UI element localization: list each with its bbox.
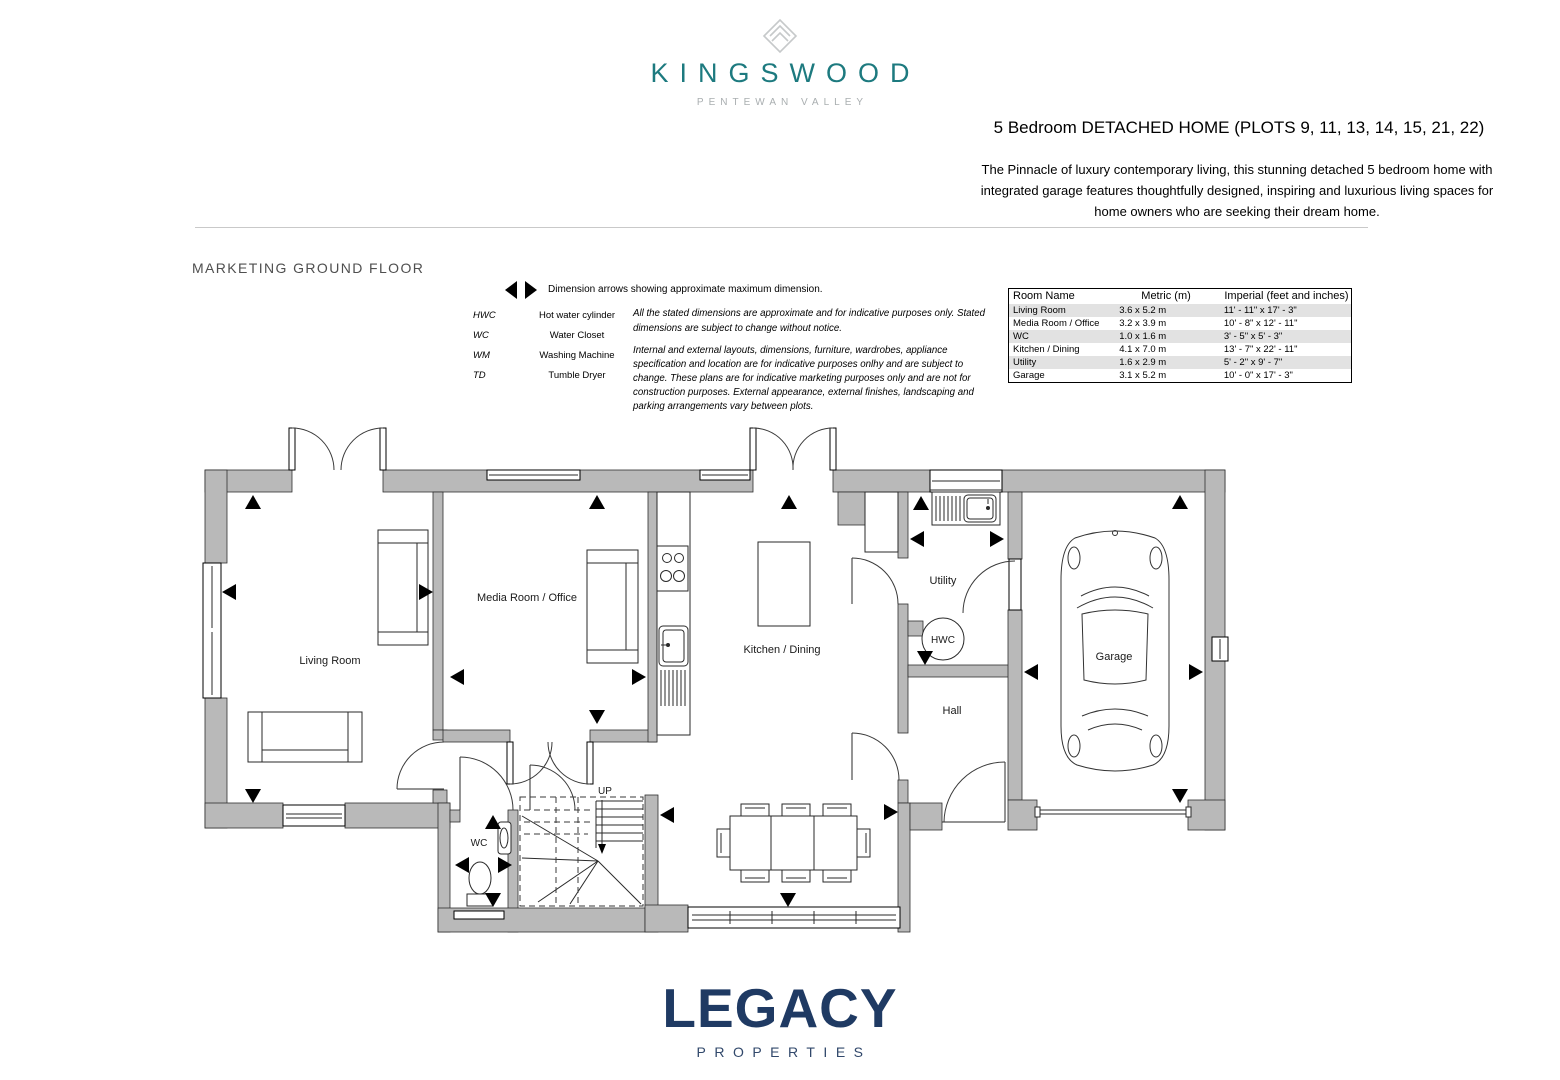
header-brand: KINGSWOOD PENTEWAN VALLEY — [0, 14, 1560, 108]
stairs-up-label: UP — [598, 786, 612, 797]
room-label-wc: WC — [471, 838, 488, 849]
room-label-garage: Garage — [1096, 651, 1133, 663]
window-garage-right — [1212, 637, 1228, 661]
cell-imperial: 13' - 7" x 22' - 11" — [1218, 343, 1352, 356]
door-utility — [852, 558, 898, 604]
brand-name: KINGSWOOD — [0, 58, 1560, 89]
sofa-media — [587, 550, 638, 663]
table-header-row: Room Name Metric (m) Imperial (feet and … — [1009, 289, 1352, 305]
brand-tagline: PENTEWAN VALLEY — [0, 97, 1560, 108]
table-row: Utility 1.6 x 2.9 m 5' - 2" x 9' - 7" — [1009, 356, 1352, 369]
french-doors-living — [289, 428, 386, 470]
cell-metric: 3.2 x 3.9 m — [1110, 317, 1218, 330]
legend-abbr: WM — [473, 350, 515, 361]
kitchen-tall-unit — [865, 492, 898, 552]
door-utility-garage — [963, 559, 1021, 613]
room-label-media: Media Room / Office — [477, 592, 577, 604]
page: KINGSWOOD PENTEWAN VALLEY 5 Bedroom DETA… — [0, 0, 1560, 1080]
table-row: WC 1.0 x 1.6 m 3' - 5" x 5' - 3" — [1009, 330, 1352, 343]
sofa-living-bottom — [248, 712, 362, 762]
room-label-utility: Utility — [930, 575, 957, 587]
window-living-left — [203, 563, 221, 698]
page-title: 5 Bedroom DETACHED HOME (PLOTS 9, 11, 13… — [985, 118, 1493, 138]
stairs: UP — [520, 786, 643, 906]
cell-imperial: 10' - 0" x 17' - 3" — [1218, 369, 1352, 382]
door-hall — [852, 733, 899, 780]
door-living — [397, 742, 444, 789]
footer-brand-tagline: PROPERTIES — [0, 1044, 1560, 1060]
table-row: Garage 3.1 x 5.2 m 10' - 0" x 17' - 3" — [1009, 369, 1352, 382]
cell-metric: 3.6 x 5.2 m — [1110, 304, 1218, 317]
legend-label: Washing Machine — [515, 350, 639, 361]
dimension-arrow-icons — [504, 280, 540, 300]
col-imperial: Imperial (feet and inches) — [1218, 289, 1352, 305]
cell-room: Utility — [1009, 356, 1111, 369]
cell-room: Media Room / Office — [1009, 317, 1111, 330]
legend-items: HWCHot water cylinder WCWater Closet WMW… — [473, 310, 639, 390]
double-doors-media — [507, 742, 593, 784]
cell-imperial: 5' - 2" x 9' - 7" — [1218, 356, 1352, 369]
legend-item: HWCHot water cylinder — [473, 310, 639, 330]
kingswood-chevron-icon — [757, 14, 803, 56]
window-media-top — [487, 470, 580, 480]
hwc-label: HWC — [931, 635, 955, 646]
cell-imperial: 3' - 5" x 5' - 3" — [1218, 330, 1352, 343]
dimension-arrows — [222, 495, 1203, 907]
cell-imperial: 11' - 11" x 17' - 3" — [1218, 304, 1352, 317]
room-label-kitchen: Kitchen / Dining — [743, 644, 820, 656]
floor-plan-svg: HWC — [198, 418, 1238, 938]
col-metric: Metric (m) — [1110, 289, 1218, 305]
disclaimer-dimensions: All the stated dimensions are approximat… — [633, 307, 985, 336]
disclaimer-layouts: Internal and external layouts, dimension… — [633, 344, 987, 414]
table-row: Living Room 3.6 x 5.2 m 11' - 11" x 17' … — [1009, 304, 1352, 317]
room-label-living: Living Room — [299, 655, 360, 667]
col-room-name: Room Name — [1009, 289, 1111, 305]
floor-plan: HWC — [198, 418, 1238, 938]
legend-arrows-note: Dimension arrows showing approximate max… — [548, 284, 823, 295]
garage-door — [1035, 807, 1191, 817]
dining-table — [717, 804, 870, 882]
legend-item: WCWater Closet — [473, 330, 639, 350]
door-wc — [460, 757, 513, 810]
legend-abbr: WC — [473, 330, 515, 341]
legend-label: Tumble Dryer — [515, 370, 639, 381]
room-label-hall: Hall — [943, 705, 962, 717]
window-wc-bottom — [454, 911, 504, 919]
footer-brand-name: LEGACY — [0, 976, 1560, 1040]
door-inner-hall — [530, 765, 575, 810]
utility-sink — [932, 492, 1000, 525]
header-divider — [195, 227, 1368, 228]
table-row: Kitchen / Dining 4.1 x 7.0 m 13' - 7" x … — [1009, 343, 1352, 356]
window-utility-top — [930, 470, 1002, 492]
kitchen-counter — [657, 492, 690, 735]
cell-room: Kitchen / Dining — [1009, 343, 1111, 356]
cell-room: WC — [1009, 330, 1111, 343]
window-kitchen-top — [700, 470, 750, 480]
french-doors-kitchen — [750, 428, 836, 470]
legend-abbr: HWC — [473, 310, 515, 321]
window-dining-bottom — [688, 907, 900, 928]
footer-brand: LEGACY PROPERTIES — [0, 976, 1560, 1060]
page-description: The Pinnacle of luxury contemporary livi… — [972, 160, 1502, 222]
legend-item: TDTumble Dryer — [473, 370, 639, 390]
legend-item: WMWashing Machine — [473, 350, 639, 370]
window-living-bottom — [283, 805, 345, 826]
cell-metric: 1.0 x 1.6 m — [1110, 330, 1218, 343]
legend-label: Water Closet — [515, 330, 639, 341]
section-heading: MARKETING GROUND FLOOR — [192, 260, 424, 276]
dimensions-table: Room Name Metric (m) Imperial (feet and … — [1008, 288, 1352, 383]
stairs-up-arrow-icon — [598, 844, 606, 854]
legend-label: Hot water cylinder — [515, 310, 639, 321]
legend-abbr: TD — [473, 370, 515, 381]
cell-metric: 1.6 x 2.9 m — [1110, 356, 1218, 369]
cell-room: Living Room — [1009, 304, 1111, 317]
cell-metric: 4.1 x 7.0 m — [1110, 343, 1218, 356]
table-row: Media Room / Office 3.2 x 3.9 m 10' - 8"… — [1009, 317, 1352, 330]
kitchen-island — [758, 542, 810, 626]
cell-imperial: 10' - 8" x 12' - 11" — [1218, 317, 1352, 330]
front-door — [942, 762, 1005, 822]
wc-basin — [498, 822, 511, 854]
cell-metric: 3.1 x 5.2 m — [1110, 369, 1218, 382]
cell-room: Garage — [1009, 369, 1111, 382]
